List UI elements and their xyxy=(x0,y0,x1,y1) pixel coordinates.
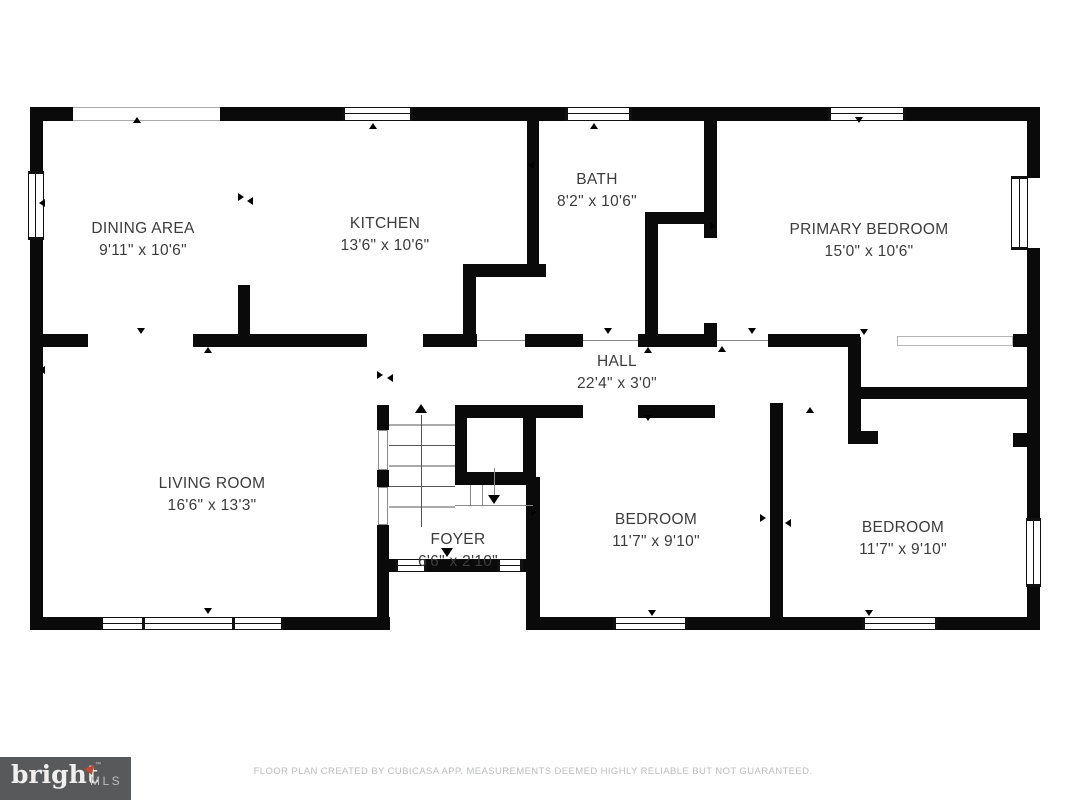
window-symbol xyxy=(100,617,284,630)
door-arrow-icon xyxy=(860,329,868,335)
door-arrow-icon xyxy=(137,328,145,334)
door-arrow-icon xyxy=(604,328,612,334)
room-label-dining: DINING AREA 9'11" x 10'6" xyxy=(91,218,194,262)
room-dims: 6'6" x 2'10" xyxy=(418,551,498,573)
window-symbol xyxy=(613,617,688,630)
window-symbol xyxy=(828,107,906,121)
room-dims: 15'0" x 10'6" xyxy=(790,241,949,263)
wall-segment xyxy=(645,212,658,347)
room-label-primary-bedroom: PRIMARY BEDROOM 15'0" x 10'6" xyxy=(790,219,949,263)
door-arrow-icon xyxy=(590,123,598,129)
wall-segment xyxy=(377,470,389,487)
room-name: BEDROOM xyxy=(612,509,700,531)
wall-segment xyxy=(688,617,862,630)
wall-segment xyxy=(220,107,342,121)
wall-segment xyxy=(906,107,1040,121)
door-arrow-icon xyxy=(39,366,45,374)
wall-segment xyxy=(193,334,367,347)
room-label-living-room: LIVING ROOM 16'6" x 13'3" xyxy=(159,473,266,517)
opening-line xyxy=(717,340,768,341)
door-arrow-icon xyxy=(806,407,814,413)
wall-segment xyxy=(30,617,100,630)
wall-segment xyxy=(632,107,828,121)
door-arrow-icon xyxy=(39,199,45,207)
disclaimer-text: FLOOR PLAN CREATED BY CUBICASA APP. MEAS… xyxy=(254,766,813,777)
opening-line xyxy=(583,340,638,341)
wall-segment xyxy=(770,403,783,617)
room-dims: 13'6" x 10'6" xyxy=(341,235,430,257)
room-label-hall: HALL 22'4" x 3'0" xyxy=(577,351,657,395)
room-name: DINING AREA xyxy=(91,218,194,240)
wall-segment xyxy=(704,323,717,347)
wall-segment xyxy=(938,617,1040,630)
room-name: FOYER xyxy=(418,529,498,551)
trademark-symbol: ™ xyxy=(95,762,101,768)
room-dims: 8'2" x 10'6" xyxy=(557,191,637,213)
wall-segment xyxy=(455,472,536,485)
room-name: HALL xyxy=(577,351,657,373)
wall-segment xyxy=(852,387,1040,399)
room-label-bath: BATH 8'2" x 10'6" xyxy=(557,169,637,213)
door-arrow-icon xyxy=(710,222,716,230)
window-symbol xyxy=(73,107,220,121)
room-name: PRIMARY BEDROOM xyxy=(790,219,949,241)
wall-segment xyxy=(1013,334,1027,347)
wall-segment xyxy=(1027,107,1040,178)
wall-segment xyxy=(768,334,860,347)
room-name: LIVING ROOM xyxy=(159,473,266,495)
room-dims: 9'11" x 10'6" xyxy=(91,240,194,262)
window-symbol xyxy=(862,617,938,630)
wall-segment xyxy=(238,285,250,347)
stair-tread-line xyxy=(482,485,483,505)
wall-segment xyxy=(455,405,583,418)
room-name: BEDROOM xyxy=(859,517,947,539)
window-symbol xyxy=(342,107,413,121)
wall-segment xyxy=(30,238,43,630)
wall-segment xyxy=(30,107,43,173)
room-dims: 11'7" x 9'10" xyxy=(612,531,700,553)
wall-segment xyxy=(377,525,389,630)
window-symbol xyxy=(1026,518,1041,587)
door-arrow-icon xyxy=(865,610,873,616)
wall-segment xyxy=(377,405,389,430)
door-arrow-icon xyxy=(238,193,244,201)
room-name: KITCHEN xyxy=(341,213,430,235)
wall-segment xyxy=(527,107,539,277)
door-arrow-icon xyxy=(718,346,726,352)
door-arrow-icon xyxy=(369,123,377,129)
wall-segment xyxy=(523,405,536,482)
wall-segment xyxy=(848,431,878,444)
door-arrow-icon xyxy=(528,161,534,169)
stair-tread-line xyxy=(470,485,471,505)
door-arrow-icon xyxy=(204,347,212,353)
railing xyxy=(378,487,388,525)
railing xyxy=(378,430,388,470)
wall-segment xyxy=(537,617,613,630)
door-arrow-icon xyxy=(204,608,212,614)
door-arrow-icon xyxy=(855,117,863,123)
wall-segment xyxy=(463,264,476,347)
window-symbol xyxy=(497,559,523,572)
bright-mls-logo: bright ™ MLS xyxy=(0,757,131,800)
logo-wordmark: bright xyxy=(11,760,98,789)
room-label-bedroom-middle: BEDROOM 11'7" x 9'10" xyxy=(612,509,700,553)
door-arrow-icon xyxy=(760,514,766,522)
wall-segment xyxy=(526,477,540,630)
stair-arrow-shaft xyxy=(494,468,495,496)
room-label-bedroom-right: BEDROOM 11'7" x 9'10" xyxy=(859,517,947,561)
room-dims: 16'6" x 13'3" xyxy=(159,495,266,517)
room-dims: 11'7" x 9'10" xyxy=(859,539,947,561)
wall-segment xyxy=(413,107,565,121)
wall-segment xyxy=(30,334,88,347)
stair-tread-line xyxy=(455,505,533,506)
stair-direction-line xyxy=(421,415,422,527)
door-arrow-icon xyxy=(785,519,791,527)
window-symbol xyxy=(1011,176,1028,250)
door-arrow-icon xyxy=(247,197,253,205)
stair-up-arrow-icon xyxy=(415,404,427,413)
logo-mls-text: MLS xyxy=(90,774,122,788)
stair-down-arrow-icon xyxy=(488,495,500,504)
wall-segment xyxy=(704,107,717,238)
door-arrow-icon xyxy=(133,117,141,123)
staircase xyxy=(389,405,455,527)
door-arrow-icon xyxy=(748,328,756,334)
window-symbol xyxy=(565,107,632,121)
room-name: BATH xyxy=(557,169,637,191)
door-arrow-icon xyxy=(644,415,652,421)
door-arrow-icon xyxy=(648,610,656,616)
door-arrow-icon xyxy=(387,374,393,382)
wall-segment xyxy=(284,617,390,630)
opening-line xyxy=(477,340,525,341)
door-arrow-icon xyxy=(377,371,383,379)
room-label-foyer: FOYER 6'6" x 2'10" xyxy=(418,529,498,573)
room-label-kitchen: KITCHEN 13'6" x 10'6" xyxy=(341,213,430,257)
closet-opening xyxy=(897,336,1013,346)
door-arrow-icon xyxy=(531,508,537,516)
room-dims: 22'4" x 3'0" xyxy=(577,373,657,395)
wall-segment xyxy=(1027,248,1040,520)
wall-segment xyxy=(525,334,583,347)
wall-segment xyxy=(1013,433,1027,447)
floor-plan: DINING AREA 9'11" x 10'6" KITCHEN 13'6" … xyxy=(0,0,1067,800)
